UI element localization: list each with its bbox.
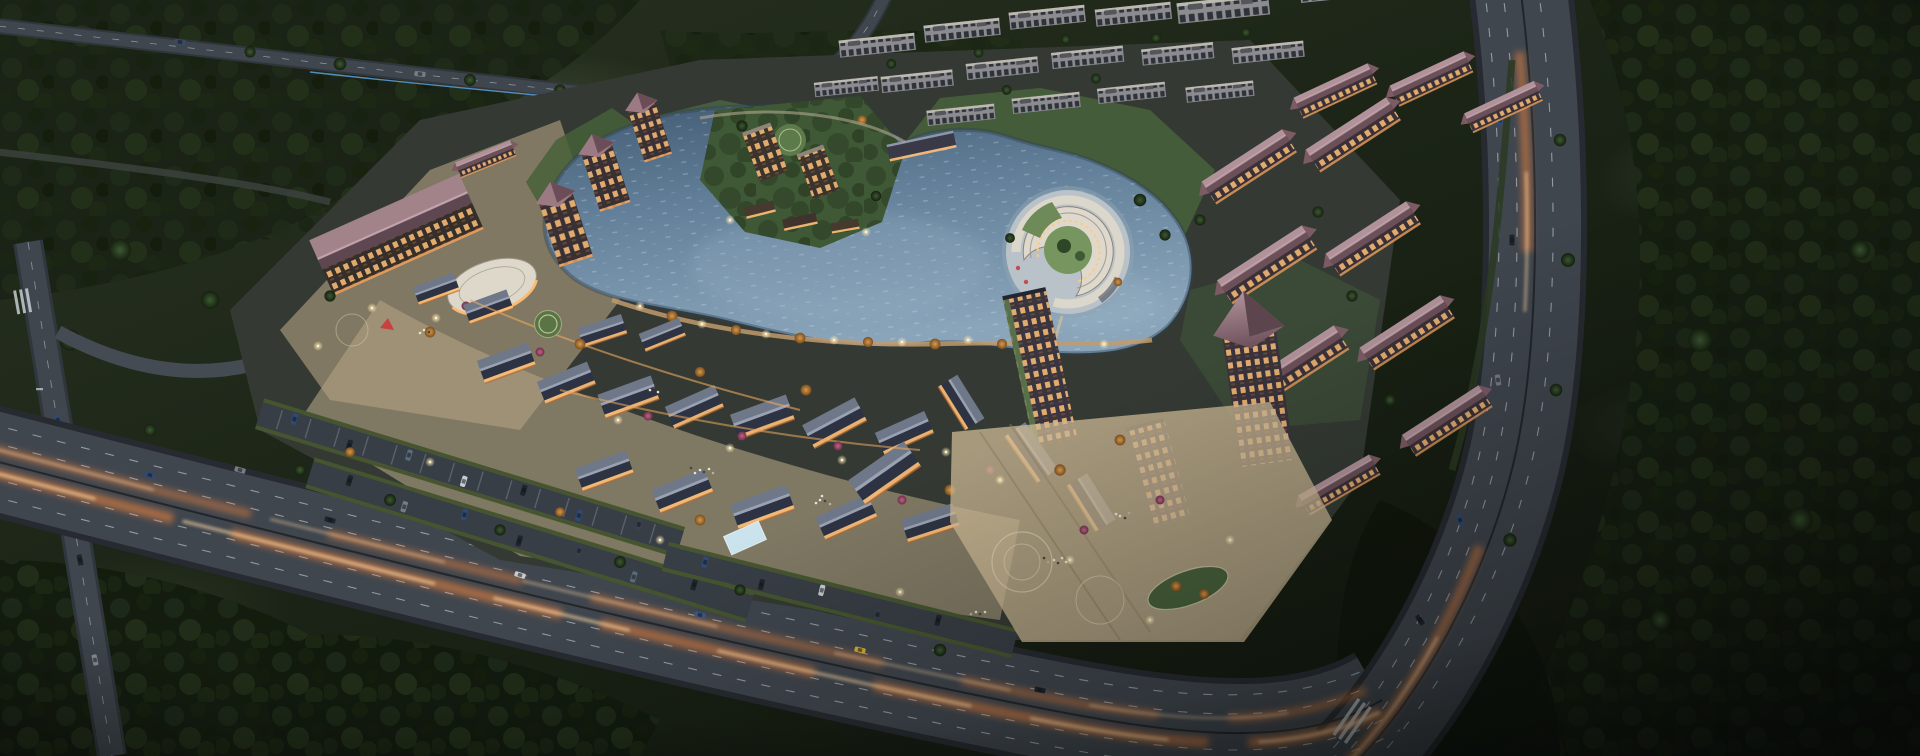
scene-canvas: [0, 0, 1920, 756]
aerial-render-image: [0, 0, 1920, 756]
dusk-vignette: [0, 0, 1920, 756]
